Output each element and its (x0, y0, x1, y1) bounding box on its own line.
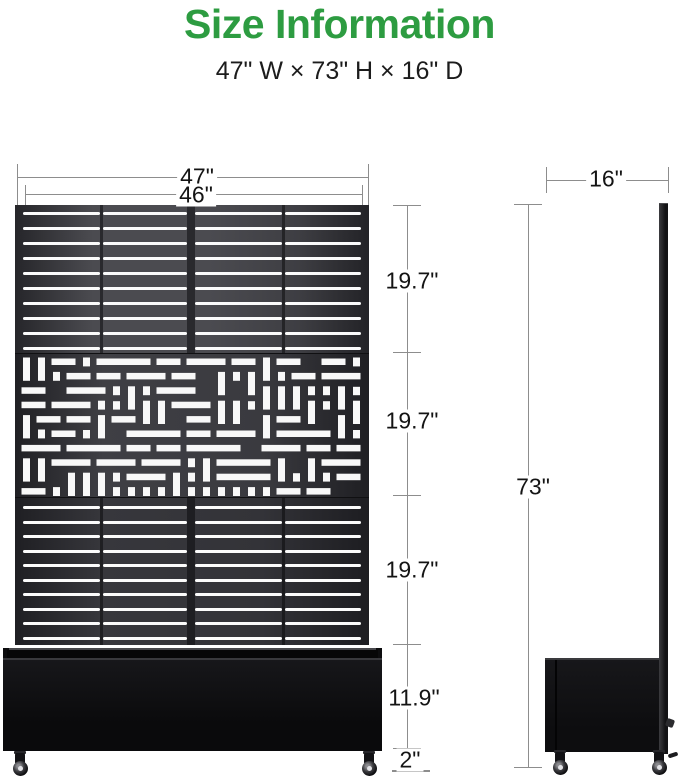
slat-gap (23, 593, 100, 596)
pattern-cutout (127, 474, 166, 481)
pattern-cutout (83, 430, 90, 438)
pattern-cutout (292, 373, 316, 380)
pattern-cutout (173, 473, 180, 496)
slat-gap (23, 521, 100, 524)
pattern-cutout (67, 445, 121, 452)
pattern-cutout (22, 445, 61, 452)
pattern-cutout (277, 359, 301, 366)
pattern-cutout (22, 488, 46, 495)
pattern-cutout (158, 401, 165, 424)
height-73-label: 73" (513, 476, 553, 499)
pattern-cutout (248, 401, 255, 409)
slat-gap (195, 212, 282, 215)
slat-gap (285, 637, 361, 640)
slat-gap (195, 550, 282, 553)
slat-gap (23, 564, 100, 567)
slat-post (282, 205, 285, 353)
pattern-cutout (337, 445, 361, 452)
caster-hub (657, 765, 662, 770)
pattern-cutout (218, 401, 225, 424)
pattern-cutout (187, 416, 211, 423)
slat-gap (103, 535, 187, 538)
pattern-cutout (113, 401, 120, 409)
pattern-cutout (263, 386, 270, 409)
pattern-cutout (322, 373, 361, 380)
slat-gap (285, 302, 361, 305)
pattern-cutout (262, 445, 301, 452)
slat-gap (103, 317, 187, 320)
pattern-cutout (232, 359, 256, 366)
pattern-cutout (23, 415, 30, 438)
pattern-cutout (187, 445, 241, 452)
slat-gap (285, 227, 361, 230)
caster-side-right (650, 750, 668, 776)
slat-section-upper (15, 205, 369, 353)
pattern-cutout (68, 473, 75, 496)
segment-height-label-3: 19.7" (383, 559, 442, 582)
pattern-cutout (97, 459, 136, 466)
pattern-cutout (233, 401, 240, 424)
caster-hub (18, 766, 23, 771)
slat-gap (285, 506, 361, 509)
planter-box-front (3, 648, 382, 751)
slat-gap (195, 535, 282, 538)
slat-gap (195, 608, 282, 611)
slat-gap (103, 579, 187, 582)
pattern-cutout (127, 373, 166, 380)
pattern-cutout (53, 372, 60, 381)
segment-height-label-2: 19.7" (383, 410, 442, 433)
slat-gap (195, 506, 282, 509)
slat-gap (103, 302, 187, 305)
slat-gap (23, 506, 100, 509)
slat-gap (285, 272, 361, 275)
pattern-cutout (322, 459, 361, 466)
slat-section-lower (15, 498, 369, 645)
width-46-tick-right (362, 185, 363, 205)
slat-gap (285, 347, 361, 350)
lattice-pattern (15, 354, 369, 499)
slat-gap (23, 637, 100, 640)
height-tick-1 (393, 205, 421, 206)
pattern-cutout (277, 416, 301, 423)
height-tick-2 (393, 352, 421, 353)
slat-gap (23, 550, 100, 553)
slat-gap (103, 564, 187, 567)
slat-gap (23, 347, 100, 350)
slat-gap (285, 550, 361, 553)
pattern-cutout (157, 359, 181, 366)
width-47-tick-right (368, 164, 369, 205)
slat-gap (23, 622, 100, 625)
slat-gap (285, 332, 361, 335)
pattern-cutout (218, 372, 225, 395)
slat-gap (195, 302, 282, 305)
pattern-cutout (323, 401, 330, 409)
size-information-figure: Size Information 47" W × 73" H × 16" D 4… (0, 0, 679, 778)
caster-brake-lever (668, 752, 679, 759)
pattern-cutout (278, 372, 285, 381)
pattern-cutout (52, 359, 76, 366)
dimensions-summary: 47" W × 73" H × 16" D (0, 57, 679, 86)
slat-gap (195, 272, 282, 275)
slat-gap (285, 622, 361, 625)
pattern-cutout (143, 386, 150, 395)
pattern-cutout (172, 373, 196, 380)
slat-gap (23, 212, 100, 215)
slat-gap (195, 593, 282, 596)
pattern-cutout (322, 359, 346, 366)
pattern-cutout (53, 487, 60, 496)
pattern-cutout (217, 474, 271, 481)
pattern-cutout (187, 359, 226, 366)
pattern-cutout (157, 387, 196, 394)
slat-gap (285, 212, 361, 215)
pattern-cutout (128, 487, 135, 496)
pattern-cutout (293, 473, 300, 481)
caster-hub (367, 766, 372, 771)
pattern-cutout (38, 458, 45, 481)
pattern-cutout (143, 487, 150, 496)
slat-gap (195, 242, 282, 245)
slat-gap (103, 347, 187, 350)
pattern-cutout (278, 386, 285, 409)
pattern-cutout (83, 473, 90, 496)
slat-gap (285, 579, 361, 582)
slat-gap (103, 506, 187, 509)
slat-gap (23, 272, 100, 275)
caster-front-left (11, 751, 29, 777)
pattern-cutout (37, 416, 61, 423)
page-title: Size Information (0, 1, 679, 48)
pattern-cutout (38, 430, 45, 439)
caster-front-right (360, 751, 378, 777)
pattern-cutout (293, 386, 300, 409)
pattern-cutout (263, 415, 270, 438)
pattern-cutout (23, 358, 30, 381)
slat-gap (195, 317, 282, 320)
height-73-cap-top (514, 204, 542, 205)
slat-gap (195, 287, 282, 290)
segment-height-label-1: 19.7" (383, 270, 442, 293)
planter-front-face (3, 660, 382, 751)
slat-post (100, 205, 103, 353)
pattern-cutout (52, 431, 76, 438)
slat-gap (103, 272, 187, 275)
width-47-tick-left (17, 164, 18, 205)
pattern-cutout (52, 402, 91, 409)
slat-gap (285, 521, 361, 524)
pattern-cutout (323, 473, 330, 482)
slat-gap (23, 317, 100, 320)
pattern-cutout (127, 445, 151, 452)
slat-gap (195, 622, 282, 625)
caster-hub (558, 765, 563, 770)
depth-16-label: 16" (586, 168, 626, 191)
slat-gap (23, 608, 100, 611)
slat-gap (195, 332, 282, 335)
slat-gap (103, 608, 187, 611)
slat-gap (195, 637, 282, 640)
caster-side-left (551, 750, 569, 776)
pattern-cutout (278, 458, 285, 481)
slat-gap (23, 535, 100, 538)
pattern-cutout (323, 386, 330, 395)
pattern-cutout (203, 458, 210, 481)
pattern-cutout (112, 416, 136, 423)
pattern-cutout (353, 358, 360, 367)
slat-gap (285, 593, 361, 596)
slat-gap (285, 564, 361, 567)
slat-post (187, 498, 195, 645)
slat-gap (23, 332, 100, 335)
pattern-cutout (308, 458, 315, 481)
slat-post (187, 205, 195, 353)
slat-gap (285, 287, 361, 290)
pattern-cutout (22, 387, 46, 394)
pattern-cutout (263, 358, 270, 381)
planter-height-label: 11.9" (385, 687, 442, 710)
slat-gap (103, 242, 187, 245)
pattern-cutout (263, 487, 270, 496)
pattern-cutout (113, 487, 120, 496)
pattern-cutout (38, 358, 45, 381)
slat-gap (103, 287, 187, 290)
depth-16-tick-left (546, 167, 547, 193)
pattern-cutout (248, 372, 255, 395)
slat-gap (23, 287, 100, 290)
pattern-cutout (97, 373, 121, 380)
height-73-cap-bottom (514, 767, 542, 768)
slat-gap (23, 227, 100, 230)
slat-gap (103, 212, 187, 215)
pattern-cutout (188, 487, 195, 496)
pattern-cutout (203, 487, 210, 496)
slat-gap (195, 564, 282, 567)
height-tick-4 (393, 644, 421, 645)
slat-gap (103, 593, 187, 596)
caster-height-label: 2" (397, 749, 424, 772)
pattern-cutout (233, 372, 240, 381)
slat-gap (195, 227, 282, 230)
pattern-cutout (98, 401, 105, 410)
slat-post (282, 498, 285, 645)
pattern-cutout (353, 430, 360, 438)
pattern-cutout (142, 459, 181, 466)
slat-gap (23, 242, 100, 245)
slat-gap (285, 317, 361, 320)
slat-gap (285, 608, 361, 611)
pattern-cutout (22, 402, 46, 409)
pattern-cutout (218, 487, 225, 496)
pattern-cutout (308, 386, 315, 395)
pattern-cutout (128, 386, 135, 409)
pattern-cutout (52, 459, 91, 466)
pattern-cutout (217, 431, 256, 438)
pattern-cutout (308, 401, 315, 424)
slat-gap (285, 257, 361, 260)
pattern-cutout (127, 431, 181, 438)
pattern-cutout (143, 401, 150, 424)
pattern-cutout (157, 445, 181, 452)
pattern-cutout (188, 473, 195, 482)
privacy-screen-side-edge (659, 203, 668, 754)
slat-gap (23, 257, 100, 260)
pattern-cutout (217, 459, 271, 466)
pattern-cutout (277, 431, 331, 438)
planter-opening (7, 650, 378, 658)
height-tick-3 (393, 495, 421, 496)
slat-gap (195, 521, 282, 524)
pattern-cutout (353, 401, 360, 424)
slat-gap (103, 637, 187, 640)
pattern-cutout (277, 488, 301, 495)
slat-gap (103, 332, 187, 335)
width-46-tick-left (25, 185, 26, 205)
pattern-cutout (248, 487, 255, 496)
pattern-cutout (113, 473, 120, 482)
slat-gap (103, 622, 187, 625)
pattern-cutout (98, 473, 105, 496)
privacy-screen-front (15, 205, 369, 645)
slat-gap (23, 302, 100, 305)
pattern-cutout (83, 358, 90, 367)
slat-gap (195, 579, 282, 582)
pattern-cutout (98, 415, 105, 438)
pattern-cutout (158, 487, 165, 496)
planter-side-seam (555, 660, 557, 752)
pattern-cutout (188, 458, 195, 467)
pattern-cutout (307, 445, 331, 452)
slat-gap (195, 347, 282, 350)
pattern-cutout (353, 387, 360, 395)
lattice-pattern-section (15, 353, 369, 498)
pattern-cutout (233, 487, 240, 496)
pattern-cutout (97, 359, 151, 366)
pattern-cutout (337, 474, 361, 481)
slat-gap (23, 579, 100, 582)
width-46-label: 46" (176, 184, 216, 207)
pattern-cutout (67, 416, 91, 423)
slat-gap (285, 535, 361, 538)
pattern-cutout (172, 402, 211, 409)
pattern-cutout (338, 415, 345, 438)
depth-16-tick-right (668, 167, 669, 193)
pattern-cutout (307, 488, 331, 495)
pattern-cutout (67, 373, 91, 380)
slat-gap (195, 257, 282, 260)
pattern-cutout (338, 386, 345, 409)
slat-gap (103, 521, 187, 524)
pattern-cutout (23, 458, 30, 481)
slat-gap (103, 550, 187, 553)
planter-box-side (545, 658, 659, 752)
pattern-cutout (187, 431, 211, 438)
pattern-cutout (67, 387, 106, 394)
slat-gap (285, 242, 361, 245)
slat-gap (103, 227, 187, 230)
slat-gap (103, 257, 187, 260)
slat-post (100, 498, 103, 645)
pattern-cutout (113, 386, 120, 395)
